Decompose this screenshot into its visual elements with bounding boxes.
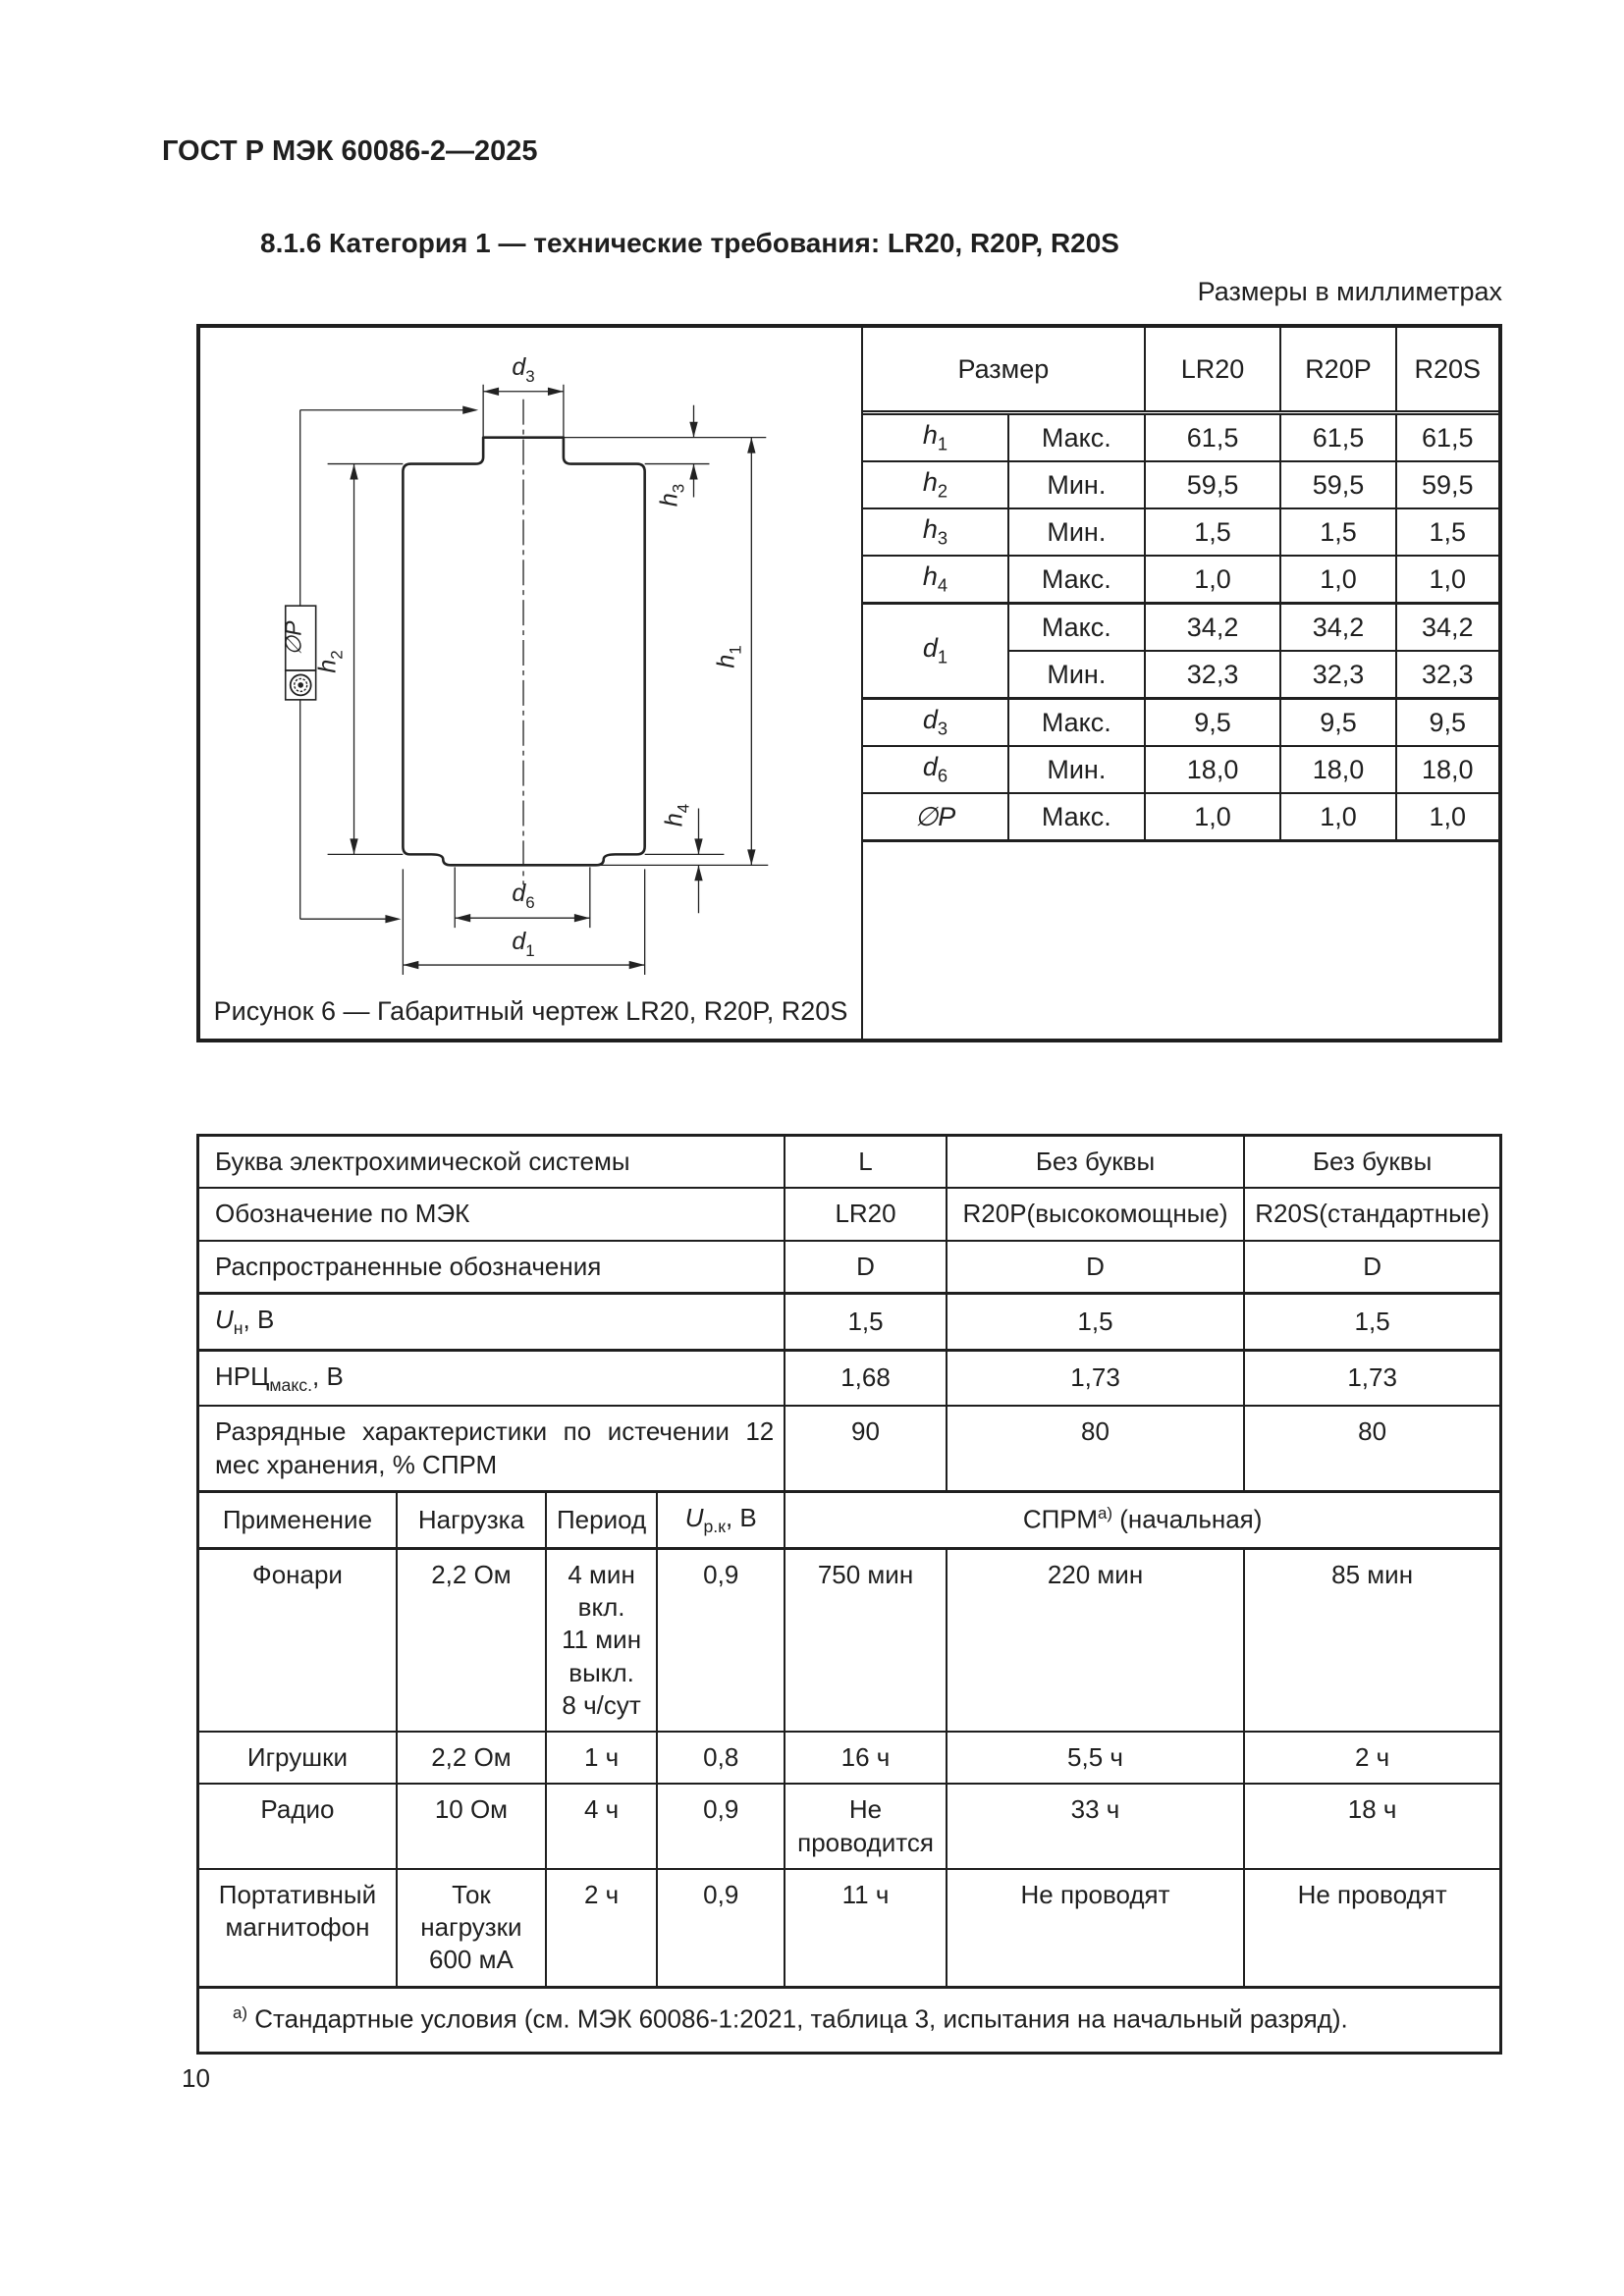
dim-limit: Макс. [1008, 556, 1145, 604]
table-row: h2 Мин. 59,5 59,5 59,5 [863, 461, 1498, 508]
app-value: Не проводится [785, 1784, 947, 1869]
dim-limit: Мин. [1008, 746, 1145, 793]
spec-value: R20P(высокомощные) [947, 1188, 1244, 1240]
app-value: 220 мин [947, 1548, 1244, 1732]
app-value: 85 мин [1244, 1548, 1500, 1732]
dim-value: 59,5 [1280, 461, 1395, 508]
dim-value: 59,5 [1396, 461, 1498, 508]
app-header-period: Период [546, 1491, 657, 1548]
app-voltage: 0,9 [657, 1548, 785, 1732]
app-value: 16 ч [785, 1732, 947, 1784]
dim-symbol: h1 [863, 413, 1008, 462]
dim-limit: Макс. [1008, 699, 1145, 747]
spec-value: 80 [947, 1406, 1244, 1491]
battery-dimension-drawing: d3 h3 h1 h2 h4 d6 d1 ∅P [200, 328, 861, 976]
dim-symbol: d6 [863, 746, 1008, 793]
spec-value: 1,5 [947, 1293, 1244, 1350]
app-name: Фонари [198, 1548, 397, 1732]
dim-value: 9,5 [1396, 699, 1498, 747]
dim-value: 1,0 [1396, 556, 1498, 604]
app-voltage: 0,9 [657, 1784, 785, 1869]
dim-value: 61,5 [1396, 413, 1498, 462]
dim-value: 32,3 [1280, 651, 1395, 699]
dims-header-size: Размер [863, 328, 1145, 413]
app-value: 33 ч [947, 1784, 1244, 1869]
app-value: Не проводят [1244, 1869, 1500, 1987]
app-header-voltage: Uр.к, В [657, 1491, 785, 1548]
app-name: Игрушки [198, 1732, 397, 1784]
specification-table: Буква электрохимической системы L Без бу… [196, 1134, 1502, 2055]
battery-drawing-panel: d3 h3 h1 h2 h4 d6 d1 ∅P Рисунок 6 — Габа… [200, 328, 861, 1039]
dim-value: 18,0 [1280, 746, 1395, 793]
dim-label-h1: h1 [712, 645, 744, 667]
dim-limit: Мин. [1008, 651, 1145, 699]
dim-label-d1: d1 [512, 928, 534, 960]
dim-symbol: d1 [863, 604, 1008, 699]
app-period: 2 ч [546, 1869, 657, 1987]
dim-symbol: h4 [863, 556, 1008, 604]
app-value: 2 ч [1244, 1732, 1500, 1784]
dim-value: 34,2 [1280, 604, 1395, 652]
spec-value: 1,68 [785, 1350, 947, 1406]
dim-value: 34,2 [1396, 604, 1498, 652]
dim-label-h3: h3 [656, 484, 688, 507]
table-row: Портативный магнитофон Ток нагрузки 600 … [198, 1869, 1501, 1987]
dim-value: 18,0 [1396, 746, 1498, 793]
dim-value: 32,3 [1396, 651, 1498, 699]
spec-value: 1,73 [947, 1350, 1244, 1406]
table-row: d1 Макс. 34,2 34,2 34,2 [863, 604, 1498, 652]
dim-value: 1,0 [1145, 556, 1281, 604]
dim-symbol: ∅P [863, 793, 1008, 841]
table-row: Разрядные характеристики по истечении 12… [198, 1406, 1501, 1491]
dim-label-d6: d6 [512, 880, 534, 912]
application-header-row: Применение Нагрузка Период Uр.к, В СПРМа… [198, 1491, 1501, 1548]
units-note: Размеры в миллиметрах [196, 277, 1502, 307]
section-heading: 8.1.6 Категория 1 — технические требован… [260, 228, 1119, 259]
spec-value: Без буквы [1244, 1136, 1500, 1189]
table-row: h3 Мин. 1,5 1,5 1,5 [863, 508, 1498, 556]
table-row: d3 Макс. 9,5 9,5 9,5 [863, 699, 1498, 747]
spec-value: 90 [785, 1406, 947, 1491]
dims-header-r20p: R20P [1280, 328, 1395, 413]
dim-label-phi-p: ∅P [281, 620, 306, 656]
table-row: Фонари 2,2 Ом 4 мин вкл. 11 мин выкл. 8 … [198, 1548, 1501, 1732]
app-value: 5,5 ч [947, 1732, 1244, 1784]
table-row: Игрушки 2,2 Ом 1 ч 0,8 16 ч 5,5 ч 2 ч [198, 1732, 1501, 1784]
dim-value: 9,5 [1145, 699, 1281, 747]
spec-value: 1,73 [1244, 1350, 1500, 1406]
app-value: 18 ч [1244, 1784, 1500, 1869]
figure-caption: Рисунок 6 — Габаритный чертеж LR20, R20P… [200, 996, 861, 1027]
dim-value: 1,0 [1280, 793, 1395, 841]
spec-label: Обозначение по МЭК [198, 1188, 785, 1240]
spec-label: Uн, В [198, 1293, 785, 1350]
app-value: 11 ч [785, 1869, 947, 1987]
table-row: Распространенные обозначения D D D [198, 1241, 1501, 1294]
app-header-application: Применение [198, 1491, 397, 1548]
document-title: ГОСТ Р МЭК 60086-2—2025 [162, 135, 538, 168]
app-value: Не проводят [947, 1869, 1244, 1987]
app-load: Ток нагрузки 600 мА [397, 1869, 546, 1987]
spec-value: Без буквы [947, 1136, 1244, 1189]
spec-value: L [785, 1136, 947, 1189]
app-header-sprm: СПРМа) (начальная) [785, 1491, 1500, 1548]
dim-label-h4: h4 [661, 804, 693, 827]
dim-value: 1,0 [1145, 793, 1281, 841]
table-row: Uн, В 1,5 1,5 1,5 [198, 1293, 1501, 1350]
app-name: Портативный магнитофон [198, 1869, 397, 1987]
table-footnote: а) Стандартные условия (см. МЭК 60086-1:… [198, 1987, 1501, 2053]
page-number: 10 [182, 2063, 210, 2094]
table-row: Обозначение по МЭК LR20 R20P(высокомощны… [198, 1188, 1501, 1240]
table-row: ∅P Макс. 1,0 1,0 1,0 [863, 793, 1498, 841]
dim-limit: Макс. [1008, 793, 1145, 841]
spec-value: D [785, 1241, 947, 1294]
app-header-load: Нагрузка [397, 1491, 546, 1548]
terminal-symbol-center [298, 682, 303, 688]
dim-label-h2: h2 [314, 650, 347, 672]
app-value: 750 мин [785, 1548, 947, 1732]
footnote-row: а) Стандартные условия (см. МЭК 60086-1:… [198, 1987, 1501, 2053]
figure-6-box: d3 h3 h1 h2 h4 d6 d1 ∅P Рисунок 6 — Габа… [196, 324, 1502, 1042]
dim-value: 34,2 [1145, 604, 1281, 652]
table-row: Радио 10 Ом 4 ч 0,9 Не проводится 33 ч 1… [198, 1784, 1501, 1869]
extension-lines [328, 385, 769, 975]
dim-value: 61,5 [1280, 413, 1395, 462]
dims-header-row: Размер LR20 R20P R20S [863, 328, 1498, 413]
app-load: 2,2 Ом [397, 1732, 546, 1784]
app-voltage: 0,9 [657, 1869, 785, 1987]
dimension-arrowheads [350, 388, 755, 970]
spec-value: LR20 [785, 1188, 947, 1240]
spec-value: D [1244, 1241, 1500, 1294]
table-row: НРЦмакс., В 1,68 1,73 1,73 [198, 1350, 1501, 1406]
app-load: 10 Ом [397, 1784, 546, 1869]
table-row: Буква электрохимической системы L Без бу… [198, 1136, 1501, 1189]
spec-label: Распространенные обозначения [198, 1241, 785, 1294]
app-voltage: 0,8 [657, 1732, 785, 1784]
dims-header-r20s: R20S [1396, 328, 1498, 413]
app-period: 4 ч [546, 1784, 657, 1869]
dim-value: 1,5 [1280, 508, 1395, 556]
dim-value: 1,0 [1280, 556, 1395, 604]
dim-symbol: d3 [863, 699, 1008, 747]
dim-value: 1,5 [1145, 508, 1281, 556]
dim-value: 61,5 [1145, 413, 1281, 462]
dimensions-table: Размер LR20 R20P R20S h1 Макс. 61,5 61,5… [863, 328, 1498, 842]
dim-limit: Макс. [1008, 413, 1145, 462]
spec-label: Буква электрохимической системы [198, 1136, 785, 1189]
dim-value: 59,5 [1145, 461, 1281, 508]
table-row: h1 Макс. 61,5 61,5 61,5 [863, 413, 1498, 462]
spec-value: D [947, 1241, 1244, 1294]
app-load: 2,2 Ом [397, 1548, 546, 1732]
app-name: Радио [198, 1784, 397, 1869]
spec-value: 80 [1244, 1406, 1500, 1491]
document-page: ГОСТ Р МЭК 60086-2—2025 8.1.6 Категория … [0, 0, 1624, 2296]
dim-symbol: h2 [863, 461, 1008, 508]
spec-value: 1,5 [1244, 1293, 1500, 1350]
dimensions-table-panel: Размер LR20 R20P R20S h1 Макс. 61,5 61,5… [861, 328, 1498, 1039]
dim-symbol: h3 [863, 508, 1008, 556]
dim-value: 1,5 [1396, 508, 1498, 556]
spec-label: Разрядные характеристики по истечении 12… [198, 1406, 785, 1491]
spec-value: R20S(стандартные) [1244, 1188, 1500, 1240]
app-period: 1 ч [546, 1732, 657, 1784]
dim-value: 9,5 [1280, 699, 1395, 747]
app-period: 4 мин вкл. 11 мин выкл. 8 ч/сут [546, 1548, 657, 1732]
dim-limit: Мин. [1008, 508, 1145, 556]
spec-label: НРЦмакс., В [198, 1350, 785, 1406]
dim-value: 18,0 [1145, 746, 1281, 793]
spec-value: 1,5 [785, 1293, 947, 1350]
dims-header-lr20: LR20 [1145, 328, 1281, 413]
dim-label-d3: d3 [512, 353, 534, 386]
dim-limit: Макс. [1008, 604, 1145, 652]
table-row: h4 Макс. 1,0 1,0 1,0 [863, 556, 1498, 604]
dim-value: 32,3 [1145, 651, 1281, 699]
table-row: d6 Мин. 18,0 18,0 18,0 [863, 746, 1498, 793]
dim-value: 1,0 [1396, 793, 1498, 841]
dim-limit: Мин. [1008, 461, 1145, 508]
